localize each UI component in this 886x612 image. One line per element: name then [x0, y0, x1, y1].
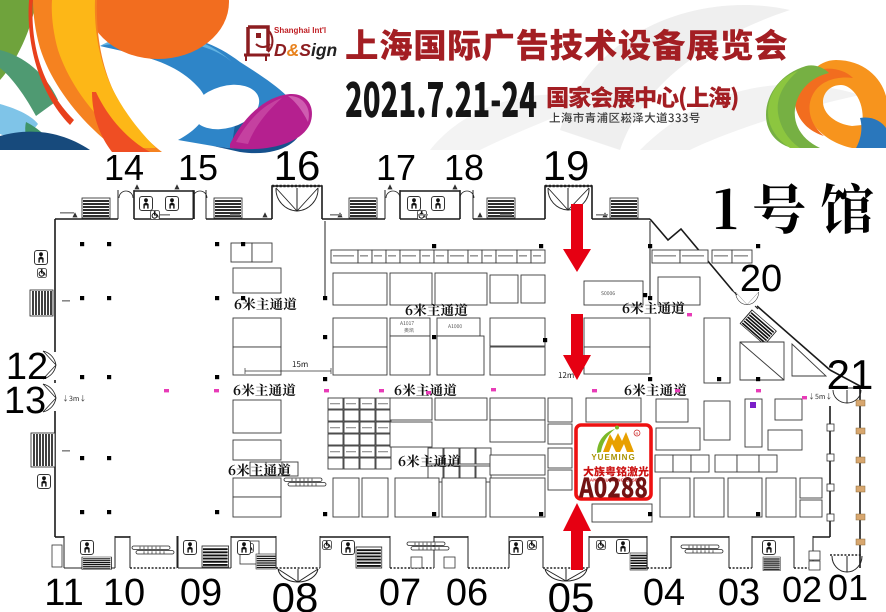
svg-text:20: 20: [740, 258, 782, 300]
svg-text:14: 14: [104, 147, 144, 188]
svg-text:18: 18: [444, 147, 484, 188]
svg-text:09: 09: [180, 572, 222, 612]
svg-text:05: 05: [548, 574, 595, 612]
svg-text:21: 21: [827, 351, 874, 398]
svg-text:04: 04: [643, 572, 685, 612]
svg-text:D&Sign: D&Sign: [274, 40, 337, 60]
svg-text:01: 01: [828, 567, 868, 608]
svg-text:02: 02: [782, 569, 822, 610]
svg-text:16: 16: [274, 142, 321, 189]
svg-text:19: 19: [543, 142, 590, 189]
svg-text:06: 06: [446, 572, 488, 612]
svg-text:R: R: [636, 431, 639, 436]
svg-text:07: 07: [379, 572, 421, 612]
svg-text:13: 13: [4, 380, 46, 422]
svg-text:YUEMING: YUEMING: [591, 453, 635, 462]
svg-text:08: 08: [272, 574, 319, 612]
svg-text:03: 03: [718, 572, 760, 612]
svg-text:10: 10: [103, 572, 145, 612]
svg-text:17: 17: [376, 147, 416, 188]
svg-text:Shanghai Int'l: Shanghai Int'l: [274, 26, 326, 35]
svg-text:11: 11: [44, 572, 83, 612]
svg-text:15: 15: [178, 147, 218, 188]
